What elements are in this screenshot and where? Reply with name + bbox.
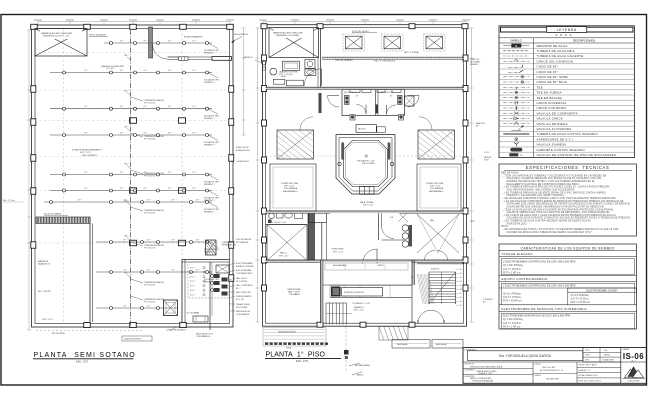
svg-text:JARDINERA: JARDINERA (436, 343, 447, 346)
svg-text:CON EMPAQUE: CON EMPAQUE (196, 335, 211, 338)
svg-text:Ø¾": Ø¾" (193, 171, 197, 174)
svg-text:POT.= 1 HP c/u: POT.= 1 HP c/u (503, 325, 521, 328)
svg-text:CONSULTORES: CONSULTORES (628, 380, 640, 382)
svg-text:IS-06: IS-06 (623, 352, 644, 361)
svg-text:PRESION Y SOLDADURA QUIL SPORT: PRESION Y SOLDADURA QUIL SPORT CENTRAL. (507, 194, 566, 197)
svg-text:Ø¾": Ø¾" (124, 238, 128, 241)
svg-text:MAD. Y VIDR.: MAD. Y VIDR. (288, 291, 300, 294)
svg-text:CONTENIDO:: CONTENIDO: (465, 370, 476, 372)
svg-text:TUBERIA ROCIADOR: TUBERIA ROCIADOR (144, 281, 164, 284)
svg-text:FECHA: FEBRERO 2010: FECHA: FEBRERO 2010 (579, 374, 598, 377)
svg-text:A.D.T.= 15.00 m.: A.D.T.= 15.00 m. (503, 322, 522, 325)
svg-text:ASPERSORES DE A.C.I.: ASPERSORES DE A.C.I. (537, 137, 575, 141)
svg-text:DESCRIPCION(ES): DESCRIPCION(ES) (573, 40, 596, 43)
svg-text:DIST:: DIST: (585, 360, 590, 362)
svg-text:NAZCA - VISTA ALEGRE: NAZCA - VISTA ALEGRE (470, 377, 492, 380)
svg-text:LLEGA TUB. AGUA Ø1": LLEGA TUB. AGUA Ø1" (166, 329, 187, 332)
svg-text:CODO DE 90° BAJA: CODO DE 90° BAJA (537, 80, 568, 84)
svg-text:PENDIENTE 15% SOTANO: PENDIENTE 15% SOTANO (276, 34, 300, 37)
svg-text:A TANQUE ELEV.: A TANQUE ELEV. (236, 149, 251, 152)
svg-text:LAS VALVULAS DE COMPUERTA SERA: LAS VALVULAS DE COMPUERTA SERAN DE BRONC… (505, 200, 624, 203)
svg-text:NAZCA: NAZCA (604, 354, 611, 357)
svg-text:A.D.T.= 37.50 m.: A.D.T.= 37.50 m. (503, 296, 522, 299)
svg-text:HALL: HALL (430, 219, 435, 222)
svg-text:Ø¾": Ø¾" (147, 198, 151, 201)
svg-text:TUBERIA DE AGUA FRIA: TUBERIA DE AGUA FRIA (537, 49, 575, 53)
svg-text:ELECTROBOMBA: ELECTROBOMBA (236, 269, 252, 272)
svg-text:Ø¾": Ø¾" (196, 238, 200, 241)
svg-text:Ø¾": Ø¾" (193, 69, 197, 72)
svg-text:PISTA: PISTA (286, 347, 292, 350)
svg-text:Niv. -2.75 m: Niv. -2.75 m (3, 200, 15, 202)
svg-text:PENDIENTE 15% N.P.T -2.75: PENDIENTE 15% N.P.T -2.75 (43, 36, 70, 38)
svg-text:EJE DE PISTA: EJE DE PISTA (52, 332, 65, 335)
svg-text:RED DE AGUA:: RED DE AGUA: (501, 172, 519, 175)
svg-text:CARPINTERIA: CARPINTERIA (287, 288, 301, 291)
svg-text:INSTALACIONES SANITARIA - AGU: INSTALACIONES SANITARIA - AGUA (470, 365, 503, 368)
svg-text:F°G° Ø1 1/4": F°G° Ø1 1/4" (144, 103, 156, 105)
svg-text:MEDIA SOMBRA: MEDIA SOMBRA (355, 364, 370, 367)
svg-text:ESPECIFICACIONES TECNICAS: ESPECIFICACIONES TECNICAS (526, 165, 610, 170)
svg-text:POZO DE AGUA: POZO DE AGUA (89, 34, 106, 37)
svg-text:CONTRAINCENDIO: CONTRAINCENDIO (236, 272, 253, 275)
svg-text:UNION UNIVERSAL: UNION UNIVERSAL (537, 101, 567, 105)
svg-text:SE INSTALARA DURANTES CONTROL: SE INSTALARA DURANTES CONTROL CADA 5 TUB… (505, 197, 617, 200)
svg-text:FUENTE DE BIDON: FUENTE DE BIDON (344, 292, 364, 294)
svg-text:AV. PROCERES MZ B LT 14: AV. PROCERES MZ B LT 14 (540, 369, 563, 372)
svg-text:Ø¾": Ø¾" (124, 304, 128, 307)
svg-text:Ø¾": Ø¾" (168, 131, 172, 134)
svg-text:TUBERIA ROCIADOR: TUBERIA ROCIADOR (144, 99, 164, 102)
svg-text:Ø2" DESAGUE: Ø2" DESAGUE (236, 241, 249, 244)
svg-text:Ø¾": Ø¾" (172, 238, 176, 241)
svg-text:F°G° Ø1 1/4": F°G° Ø1 1/4" (144, 213, 156, 215)
svg-text:Ø¾": Ø¾" (120, 187, 124, 190)
svg-text:Ø 1 ¼": Ø 1 ¼" (190, 280, 196, 283)
svg-text:Ø¾": Ø¾" (193, 187, 197, 190)
svg-text:VALVULA DE COMPUERTA: VALVULA DE COMPUERTA (537, 111, 578, 115)
svg-text:DPTO:: DPTO: (585, 350, 591, 352)
svg-text:ELECTROBOMBA P/: ELECTROBOMBA P/ (236, 262, 254, 265)
svg-text:ELEV.: ELEV. (484, 160, 489, 162)
svg-text:1 PISO DE CEMENTO: 1 PISO DE CEMENTO (335, 60, 354, 62)
svg-text:BAJA TUB.: BAJA TUB. (476, 122, 485, 125)
svg-text:POT.= 1.5 HP c/u: POT.= 1.5 HP c/u (571, 301, 591, 304)
svg-text:Ø¾": Ø¾" (168, 171, 172, 174)
svg-text:Ø¾": Ø¾" (168, 105, 172, 108)
svg-text:TEE EN SUBIDA: TEE EN SUBIDA (537, 91, 562, 95)
svg-text:Ø¾": Ø¾" (144, 171, 148, 174)
svg-text:F°G° Ø1 1/4": F°G° Ø1 1/4" (144, 139, 156, 141)
svg-text:PASADIZO: PASADIZO (354, 306, 364, 309)
svg-text:TEE EN BAJADA: TEE EN BAJADA (537, 96, 563, 100)
svg-text:LAS GAVIOTAS: LAS GAVIOTAS (546, 377, 560, 380)
svg-text:RAMPA DE: RAMPA DE (38, 260, 49, 263)
svg-text:CTO. BOMBAS: CTO. BOMBAS (186, 312, 200, 315)
svg-text:N.P.T. +0.15: N.P.T. +0.15 (333, 251, 343, 253)
svg-text:AGUA DE CONSUMO: AGUA DE CONSUMO (236, 265, 254, 268)
svg-text:RED A PRESION: RED A PRESION (234, 33, 249, 36)
svg-text:Ø¾": Ø¾" (144, 131, 148, 134)
svg-text:BAJADA 15%: BAJADA 15% (38, 263, 50, 266)
svg-text:PLANTA SEMI SOTANO: PLANTA SEMI SOTANO (34, 352, 136, 359)
svg-text:Ø¾": Ø¾" (196, 198, 200, 201)
svg-text:TUBERIA DE AGUA CALIENTE: TUBERIA DE AGUA CALIENTE (537, 54, 584, 58)
svg-text:A.D.T.= 37.00 m.: A.D.T.= 37.00 m. (571, 297, 590, 300)
svg-text:RESERVA 10m3: RESERVA 10m3 (222, 243, 236, 246)
svg-text:PISO CEMENTO: PISO CEMENTO (82, 155, 98, 157)
svg-text:REGLAMENTO NACIONAL DE CONSTRU: REGLAMENTO NACIONAL DE CONSTRUCCIONES DE… (507, 183, 580, 186)
svg-text:Ø¾": Ø¾" (172, 268, 176, 271)
svg-text:SUBE MONTANTE: SUBE MONTANTE (236, 295, 252, 298)
svg-text:Ø¾": Ø¾" (168, 69, 172, 72)
svg-text:PROV:: PROV: (585, 355, 591, 357)
svg-text:DISENO:: DISENO: (535, 375, 542, 377)
svg-text:UNIONES DE ROSCA PARA TUBERIAS: UNIONES DE ROSCA PARA TUBERIAS DE FIERRO… (507, 231, 594, 234)
svg-text:TEE: TEE (537, 85, 543, 89)
svg-text:SUBE 17p: SUBE 17p (431, 269, 439, 271)
svg-text:Ø 1 ¼": Ø 1 ¼" (190, 271, 196, 274)
svg-text:SE CONTEMPLARA TODOS LOS DUCT: SE CONTEMPLARA TODOS LOS DUCTOS Y ACCESO… (505, 228, 619, 231)
svg-text:CODO DE 90° SUBE: CODO DE 90° SUBE (537, 75, 568, 79)
svg-text:Ø 1 ¼": Ø 1 ¼" (190, 289, 196, 292)
svg-text:SUBE TUB. Ø2": SUBE TUB. Ø2" (236, 147, 249, 149)
svg-text:N.P.T. -2.75: N.P.T. -2.75 (80, 152, 92, 154)
svg-text:Ø¾": Ø¾" (85, 187, 89, 190)
svg-text:POT.= 1 HP c/u: POT.= 1 HP c/u (503, 271, 521, 274)
svg-text:VALVULA FLOTADORA: VALVULA FLOTADORA (537, 127, 572, 131)
svg-text:N.P.T +0.15: N.P.T +0.15 (279, 255, 288, 257)
svg-text:ELECTROBOMBA MONOFASICA DE 2: ELECTROBOMBA MONOFASICA DE 220V. 850 3,6… (503, 315, 570, 318)
svg-text:CADAS ENTRE DOS UNIONES UNIVE: CADAS ENTRE DOS UNIONES UNIVERSALES A FI… (507, 205, 605, 208)
svg-text:AISLANTE TERMICO EN TODA SU LO: AISLANTE TERMICO EN TODA SU LONGITUD DE … (507, 211, 611, 214)
svg-text:PLANTA 1° PISO: PLANTA 1° PISO (478, 372, 493, 375)
svg-text:Sra. YOR MIGUELA QUIVA GARCI: Sra. YOR MIGUELA QUIVA GARCIA (499, 354, 552, 358)
svg-text:PLANTA 1° PISO: PLANTA 1° PISO (266, 351, 326, 359)
svg-text:VEREDA EXISTENTE: VEREDA EXISTENTE (278, 330, 297, 333)
svg-text:ESC. 1/75: ESC. 1/75 (296, 359, 308, 363)
svg-text:S.1.15: S.1.15 (484, 152, 489, 154)
svg-text:EQUIPO CONTRAINCENDIO: EQUIPO CONTRAINCENDIO (502, 277, 549, 281)
svg-text:DORM. SERV.: DORM. SERV. (332, 249, 345, 251)
svg-text:PROYECTO:: PROYECTO: (465, 364, 475, 366)
svg-text:A.D.T.= 25.00 m.: A.D.T.= 25.00 m. (503, 268, 522, 271)
svg-text:N.P.T. +0.15: N.P.T. +0.15 (354, 310, 364, 312)
svg-text:Ø2" A TANQ.: Ø2" A TANQ. (470, 61, 481, 64)
svg-text:Ø¾": Ø¾" (147, 238, 151, 241)
svg-text:M: M (515, 45, 517, 48)
svg-text:NORMAS TECNICAS DE ITINTEC Y C: NORMAS TECNICAS DE ITINTEC Y CON LAS NOR… (507, 180, 596, 183)
svg-text:Ø¾": Ø¾" (147, 304, 151, 307)
svg-text:INSTALARA CON UNION UNIVERSA: INSTALARA CON UNION UNIVERSALES DE FIERR… (507, 203, 631, 206)
svg-text:TUBERIA ROCIADOR: TUBERIA ROCIADOR (144, 244, 164, 247)
svg-text:TANQUE ELEVADO: TANQUE ELEVADO (502, 252, 534, 256)
svg-text:LAS TUBERIAS DE AGUA CONTRA IN: LAS TUBERIAS DE AGUA CONTRA INCENDIO SER… (505, 220, 592, 223)
svg-text:MACHIMBRADO: MACHIMBRADO (283, 190, 298, 193)
svg-text:TODA LAS MATERIALES TUBERIAS Y: TODA LAS MATERIALES TUBERIAS Y ACCESORIO… (505, 174, 607, 177)
svg-text:NOTA:: NOTA: (501, 225, 509, 228)
svg-text:ELECTROBOMBA DE DESAGUE TIPO S: ELECTROBOMBA DE DESAGUE TIPO SUMERGIBLE (502, 307, 587, 311)
svg-text:Ø¾": Ø¾" (144, 69, 148, 72)
svg-text:PISO LOSETA: PISO LOSETA (362, 162, 375, 165)
svg-text:CODO DE 90°: CODO DE 90° (537, 65, 558, 69)
svg-text:CAJA DE REGISTRO: CAJA DE REGISTRO (124, 338, 142, 341)
svg-text:REVISO: ING. H. BACH: REVISO: ING. H. BACH (579, 364, 598, 367)
svg-text:A G U A: A G U A (556, 33, 573, 37)
svg-text:COLUMNA DE AGUA DURANTE 15 MIN: COLUMNA DE AGUA DURANTE 15 MINUTOS SIN Q… (507, 217, 631, 220)
svg-text:Ø¾": Ø¾" (120, 69, 124, 72)
svg-text:N.P.T. +0.15: N.P.T. +0.15 (363, 205, 373, 207)
svg-text:DORMITORIO PPAL.: DORMITORIO PPAL. (426, 182, 444, 185)
svg-text:S.H. VIS. N.P.T +0.15: S.H. VIS. N.P.T +0.15 (270, 222, 286, 224)
svg-text:Ø¾": Ø¾" (120, 131, 124, 134)
svg-text:F°G° Ø1 1/4": F°G° Ø1 1/4" (144, 302, 156, 304)
svg-text:CON UNION ROSCADA, INCLUYENDO: CON UNION ROSCADA, INCLUYENDO SUS ACCESO… (507, 189, 576, 192)
svg-text:GABINETE CONTRA INCENDIO: GABINETE CONTRA INCENDIO (537, 148, 586, 152)
svg-text:LLEGA TUB Ø1": LLEGA TUB Ø1" (236, 160, 250, 163)
svg-text:Ø¾": Ø¾" (120, 171, 124, 174)
svg-text:CARACTERISTICAS DE LOS EQUIPOS: CARACTERISTICAS DE LOS EQUIPOS DE BOMBEO (521, 246, 615, 250)
svg-text:Q= 10 LPS/Seg.: Q= 10 LPS/Seg. (503, 292, 521, 295)
svg-text:Ø¾": Ø¾" (124, 268, 128, 271)
svg-text:A.C.I. Ø4": A.C.I. Ø4" (236, 298, 244, 301)
svg-text:SUCCION Ø4": SUCCION Ø4" (236, 307, 248, 309)
svg-text:MEDIDOR DE AGUA: MEDIDOR DE AGUA (537, 44, 568, 48)
svg-text:Ø¾": Ø¾" (172, 198, 176, 201)
svg-text:ARBOL: ARBOL (357, 374, 363, 377)
svg-text:VENT.: VENT. (470, 221, 476, 223)
svg-text:2 ELECTROBOMBAS CENTRIFUGAS DE: 2 ELECTROBOMBAS CENTRIFUGAS DE 220V. 850… (503, 261, 575, 264)
svg-text:Ø 1 ¼": Ø 1 ¼" (190, 294, 196, 297)
svg-text:SALA · ESTAR: SALA · ESTAR (360, 201, 374, 204)
svg-text:VALVULA DE RIEGO: VALVULA DE RIEGO (537, 122, 569, 126)
svg-text:Ø¾": Ø¾" (193, 131, 197, 134)
svg-text:PATIO 2: PATIO 2 (280, 252, 287, 255)
svg-text:Ø¾": Ø¾" (144, 187, 148, 190)
svg-text:P. ACABADO: P. ACABADO (289, 293, 301, 296)
svg-text:2 ELECTROBOMBAS CENTRIFUGAS DE: 2 ELECTROBOMBAS CENTRIFUGAS DE 220V. 850… (503, 284, 575, 287)
svg-text:TANQUE: TANQUE (484, 156, 492, 159)
svg-text:DE CONTROL: DE CONTROL (236, 281, 248, 283)
svg-text:CAD. LVR. GMC.: CAD. LVR. GMC. (542, 366, 556, 369)
svg-text:Ø¾": Ø¾" (144, 105, 148, 108)
svg-text:REFRI: REFRI (378, 265, 384, 267)
svg-text:JACUZZI: JACUZZI (358, 128, 366, 131)
svg-text:Ø¾": Ø¾" (196, 268, 200, 271)
svg-text:PATIO 2 TENDAL: PATIO 2 TENDAL (404, 51, 419, 54)
svg-text:Ø2": Ø2" (483, 302, 486, 304)
svg-text:CON EMPAQUE: CON EMPAQUE (236, 313, 250, 316)
svg-text:Ø¾": Ø¾" (85, 131, 89, 134)
svg-text:Ø¾": Ø¾" (168, 187, 172, 190)
svg-text:ELECTROBOMBA JOCKEY: ELECTROBOMBA JOCKEY (586, 289, 618, 292)
svg-text:JARDINERA: JARDINERA (397, 343, 408, 346)
svg-text:AGUA FRIA, CALIENTE SERAN DE P: AGUA FRIA, CALIENTE SERAN DE PVC RIGIDO … (507, 177, 603, 180)
svg-text:TUBERIA ROCIADOR: TUBERIA ROCIADOR (144, 298, 164, 301)
svg-text:PISO MADERA: PISO MADERA (430, 187, 444, 190)
svg-text:TUB. DE REBOSE: TUB. DE REBOSE (236, 239, 252, 241)
svg-text:Ø¾": Ø¾" (85, 69, 89, 72)
svg-text:TUBERIA DE AGUA CONTRA INCENDI: TUBERIA DE AGUA CONTRA INCENDIO (537, 132, 599, 136)
svg-text:CANASTILLA DE: CANASTILLA DE (236, 303, 251, 306)
svg-text:S.H.: S.H. (390, 217, 394, 219)
svg-text:SIMBOLO: SIMBOLO (510, 40, 521, 43)
svg-text:TODA LA INSTALACION DE AGUA C: TODA LA INSTALACION DE AGUA CALIENTE SE … (505, 208, 615, 211)
svg-text:Q= 1.50 LPS/Seg.: Q= 1.50 LPS/Seg. (503, 264, 524, 267)
svg-text:INICIO DE RAMPA: INICIO DE RAMPA (44, 213, 62, 216)
svg-text:Q= 1.50 LPS/Seg.: Q= 1.50 LPS/Seg. (503, 318, 524, 321)
svg-text:TABL. ELECT.: TABL. ELECT. (236, 277, 248, 280)
svg-text:PROF: ING. LUIS E. LUCE R.: PROF: ING. LUIS E. LUCE R. (579, 381, 602, 383)
svg-text:TUBERIA ROCIADOR: TUBERIA ROCIADOR (144, 135, 164, 138)
svg-text:Ø 1 ¼": Ø 1 ¼" (190, 267, 196, 270)
svg-text:VALVULA DE PIE: VALVULA DE PIE (236, 310, 251, 313)
svg-text:VESTIDOR S.H.2: VESTIDOR S.H.2 (380, 92, 394, 94)
svg-text:LAS TUBERIAS PARA AGUA FRIA DE: LAS TUBERIAS PARA AGUA FRIA DE PVC RIGID… (505, 186, 610, 189)
svg-text:Ø2": Ø2" (476, 126, 479, 128)
svg-text:ESTACIONAMIENTO: ESTACIONAMIENTO (184, 35, 204, 38)
svg-text:MACHIMBRADO: MACHIMBRADO (429, 190, 444, 193)
svg-text:VISTA ALEGRE: VISTA ALEGRE (602, 359, 615, 362)
svg-text:Ø 1 ¼": Ø 1 ¼" (190, 285, 196, 288)
svg-text:CRUCE SIN CONEXION: CRUCE SIN CONEXION (537, 59, 574, 63)
svg-text:Ø¾": Ø¾" (120, 39, 124, 42)
svg-text:F°G° Ø1 1/4": F°G° Ø1 1/4" (144, 248, 156, 250)
svg-text:VEL 1 TUB Ø2": VEL 1 TUB Ø2" (38, 291, 51, 293)
svg-text:Ø¾": Ø¾" (78, 198, 82, 201)
svg-text:ZONA DE ESTACIONAMIENTO: ZONA DE ESTACIONAMIENTO (72, 149, 102, 152)
svg-text:VESTIDOR S.H.1: VESTIDOR S.H.1 (344, 92, 358, 94)
svg-text:Ø¾": Ø¾" (147, 268, 151, 271)
svg-text:Ø¾": Ø¾" (168, 39, 172, 42)
svg-text:VALV. CHECK Ø2": VALV. CHECK Ø2" (236, 291, 251, 294)
svg-text:PISO MADERA: PISO MADERA (284, 187, 298, 190)
svg-text:POT.= 15 HP c/u: POT.= 15 HP c/u (503, 300, 522, 303)
svg-text:F°G° Ø1": F°G° Ø1" (106, 68, 115, 70)
svg-text:Ø¾": Ø¾" (120, 105, 124, 108)
svg-text:Ø¾": Ø¾" (193, 105, 197, 108)
svg-text:LAS TUBERIAS PARA AGUA CALIENT: LAS TUBERIAS PARA AGUA CALIENTE SERAN DE… (505, 191, 606, 194)
svg-text:ESCALA: 1 / 75: ESCALA: 1 / 75 (579, 369, 591, 372)
svg-text:LEYENDA: LEYENDA (557, 28, 577, 32)
svg-text:TUBERIA ROCIADOR: TUBERIA ROCIADOR (144, 209, 164, 212)
svg-text:UNION CON BRIDA: UNION CON BRIDA (537, 106, 567, 110)
svg-text:VALVULA DE CONTROL DE PISO DE: VALVULA DE CONTROL DE PISO DE ROCIADORES (537, 153, 617, 157)
svg-text:Ø¾": Ø¾" (124, 198, 128, 201)
svg-text:ALACENA BAJA: ALACENA BAJA (333, 264, 347, 267)
svg-text:Ø 1 ¼": Ø 1 ¼" (190, 276, 196, 279)
svg-text:ELEVADO: ELEVADO (470, 63, 479, 66)
svg-text:(VER DETALLES): (VER DETALLES) (507, 222, 527, 225)
svg-text:Ø¾": Ø¾" (85, 105, 89, 108)
svg-text:VALV. COMPUERTA: VALV. COMPUERTA (236, 284, 253, 287)
svg-text:COCINA N.P.T. +0.15: COCINA N.P.T. +0.15 (352, 302, 370, 305)
svg-text:F°G° Ø1 1/4": F°G° Ø1 1/4" (144, 176, 156, 178)
svg-text:CODO DE 45°: CODO DE 45° (537, 70, 558, 74)
svg-text:N.P.T. -2.75: N.P.T. -2.75 (42, 319, 53, 321)
svg-text:VALVULA SIAMESA: VALVULA SIAMESA (537, 143, 567, 147)
svg-text:VALVULA CHECK: VALVULA CHECK (537, 117, 564, 121)
svg-text:DORMITORIO SRA.: DORMITORIO SRA. (281, 182, 299, 185)
svg-text:PVA. & F/T VENTILACION: PVA. & F/T VENTILACION (374, 60, 396, 63)
svg-text:Q= 0.5 LPS/Seg.: Q= 0.5 LPS/Seg. (571, 294, 590, 297)
svg-text:Ø¾": Ø¾" (85, 171, 89, 174)
svg-text:Ø¾": Ø¾" (193, 39, 197, 42)
svg-text:LOS CODOS DE AGUA FRIA Y AGUA: LOS CODOS DE AGUA FRIA Y AGUA CALIENTE E… (505, 214, 617, 217)
svg-text:LAMINA:: LAMINA: (623, 348, 630, 351)
svg-text:ESC. 1/75: ESC. 1/75 (76, 359, 88, 363)
svg-text:VIVIENDA UNIFAMILIAR: VIVIENDA UNIFAMILIAR (472, 380, 494, 383)
svg-text:F°G° Ø1 1/4": F°G° Ø1 1/4" (144, 285, 156, 287)
svg-text:Ø¾": Ø¾" (144, 39, 148, 42)
svg-text:DIBUJO:: DIBUJO: (535, 364, 542, 366)
